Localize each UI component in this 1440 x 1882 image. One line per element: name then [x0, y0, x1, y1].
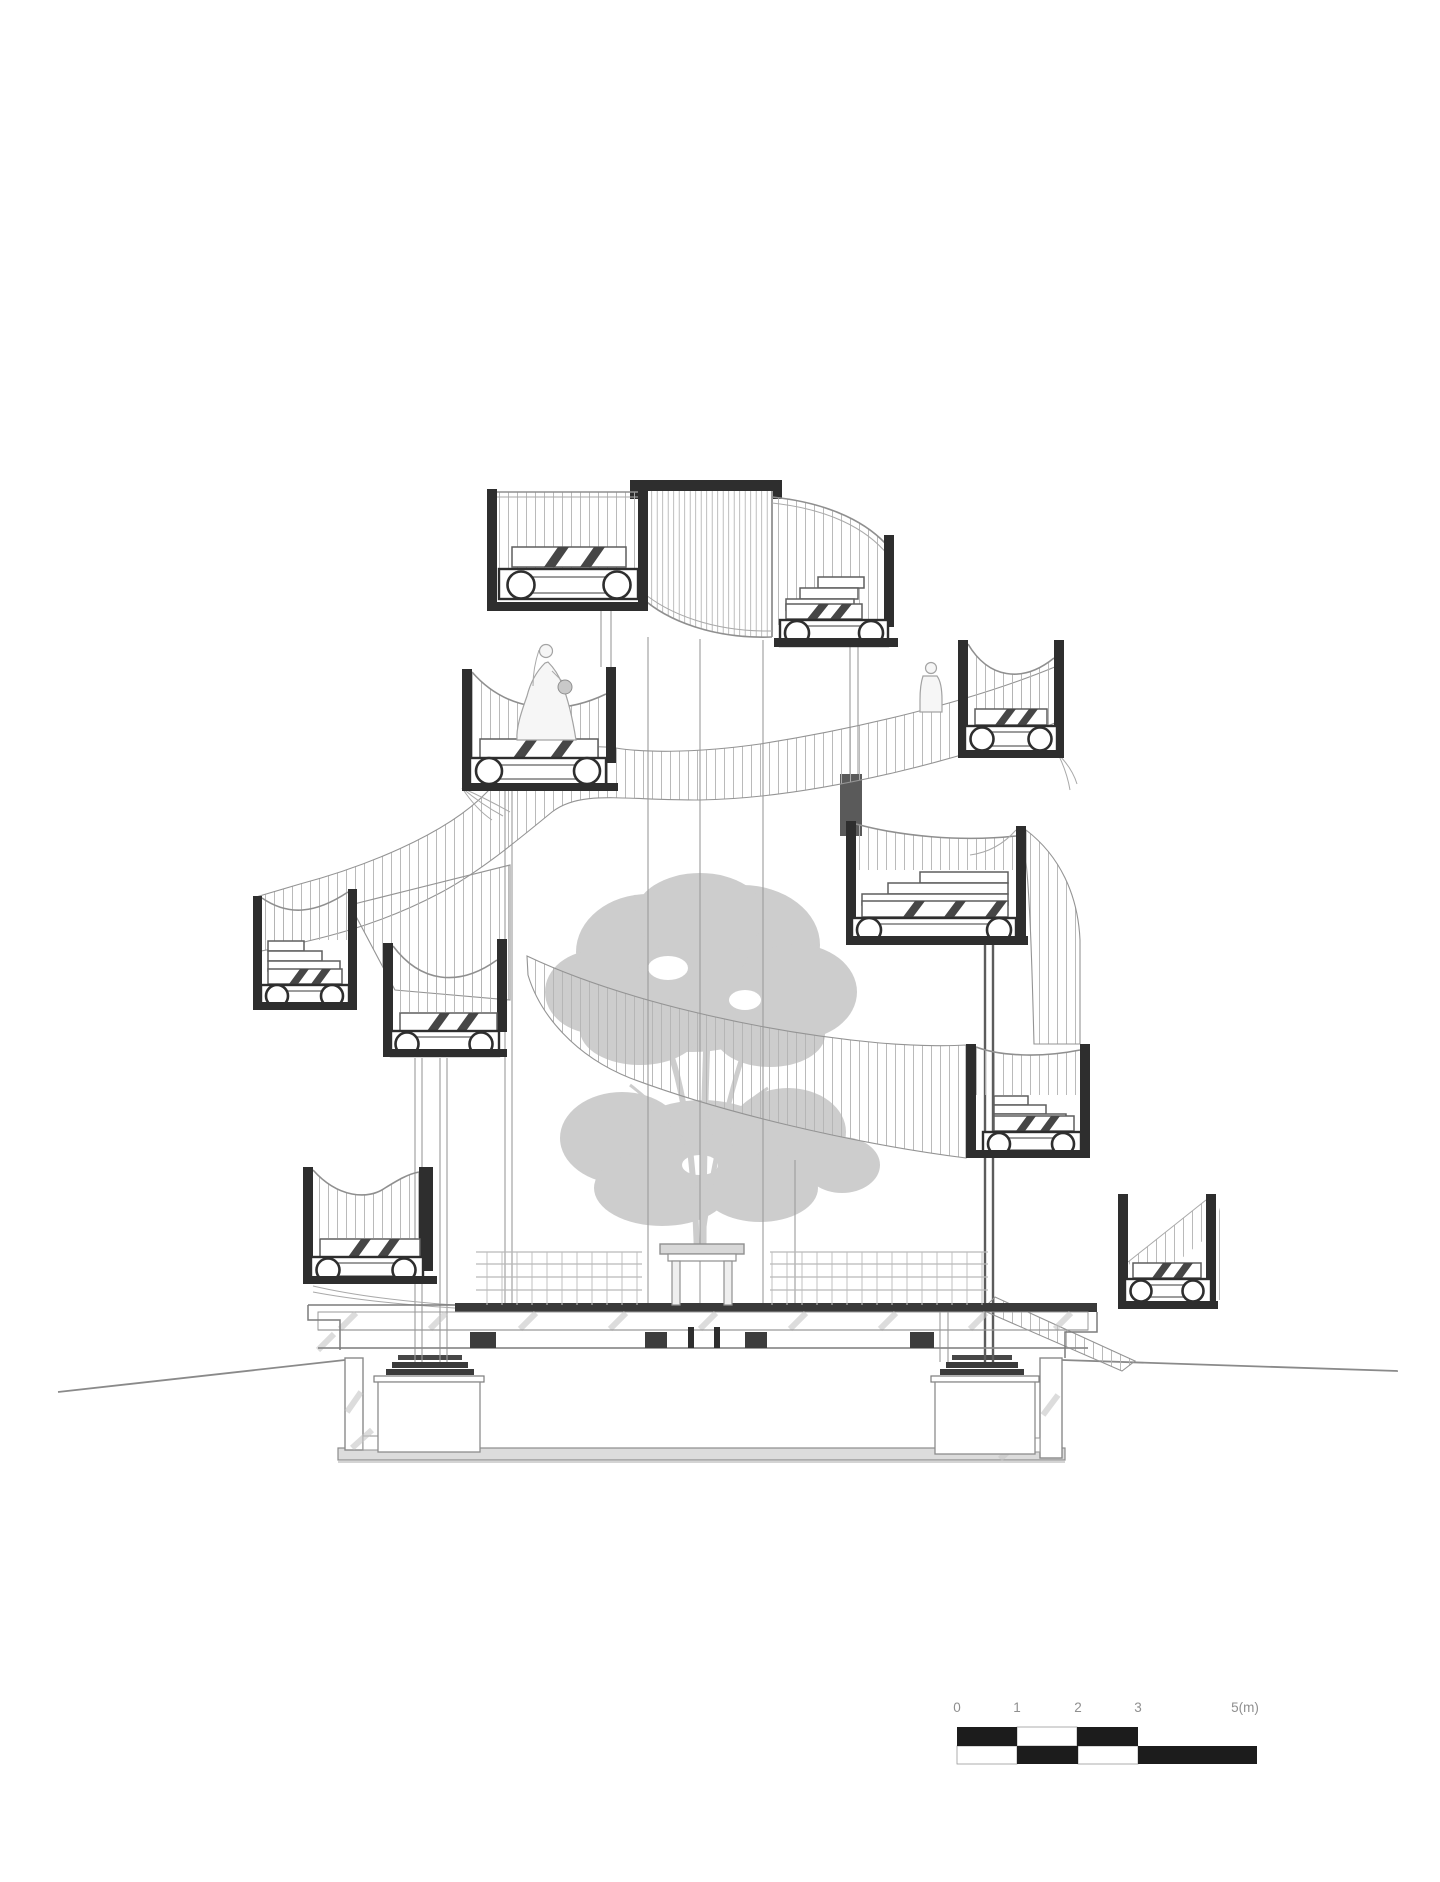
scale-segment-2-3 — [1077, 1727, 1138, 1746]
ramp-run-right — [1026, 830, 1080, 1044]
railing-left — [476, 1252, 642, 1305]
scale-label-1: 1 — [1013, 1700, 1021, 1715]
pod-top-left — [487, 489, 648, 611]
deck — [308, 1303, 1097, 1358]
groom-figure — [920, 663, 942, 713]
ground-lines — [58, 1360, 1398, 1392]
scale-label-3: 3 — [1134, 1700, 1142, 1715]
section-drawing-svg: 0 1 2 3 5(m) — [0, 0, 1440, 1882]
scale-segment-3-5 — [1138, 1746, 1257, 1764]
footing-left — [374, 1355, 484, 1452]
railing-right — [770, 1252, 988, 1305]
pod-bottom-right — [1118, 1194, 1227, 1309]
scale-label-0: 0 — [953, 1700, 961, 1715]
bride-figure — [517, 645, 576, 741]
pod-right-mid-stairs — [846, 821, 1028, 945]
scale-label-5m: 5(m) — [1231, 1700, 1259, 1715]
tower-cap — [630, 480, 782, 491]
scale-segment-1-2 — [1017, 1746, 1078, 1764]
pod-right-upper — [958, 640, 1064, 758]
foundation — [318, 1334, 1065, 1462]
tower — [630, 480, 782, 637]
ground-line-left — [58, 1360, 345, 1392]
scale-label-2: 2 — [1074, 1700, 1082, 1715]
footing-right — [931, 1355, 1039, 1454]
drawing-sheet: 0 1 2 3 5(m) — [0, 0, 1440, 1882]
pod-top-right-stairs — [772, 497, 898, 647]
pod-bottom-left — [303, 1167, 437, 1284]
scale-segment-0-1 — [957, 1727, 1017, 1746]
planter-table — [660, 1244, 744, 1305]
scale-bar: 0 1 2 3 5(m) — [953, 1700, 1259, 1764]
